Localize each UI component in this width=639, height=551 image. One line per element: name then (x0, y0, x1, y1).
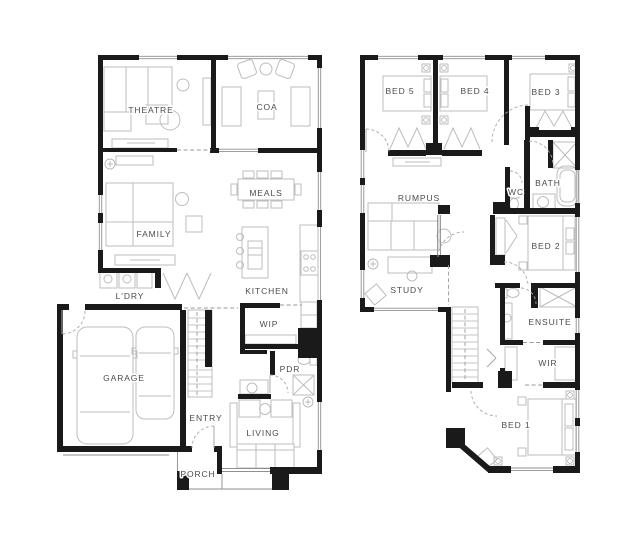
room-label-ensuite: ENSUITE (528, 317, 571, 327)
room-label-laundry: L'DRY (116, 291, 145, 301)
room-label-living: LIVING (246, 428, 279, 438)
room-label-theatre: THEATRE (128, 105, 173, 115)
room-label-powder: PDR (280, 364, 301, 374)
room-label-entry: ENTRY (189, 413, 222, 423)
room-label-coa: COA (256, 102, 277, 112)
floor-plan-canvas: THEATRE COA MEALS FAMILY KITCHEN L'DRY W… (0, 0, 639, 551)
room-label-bed1: BED 1 (501, 420, 530, 430)
floor-plan-page: THEATRE COA MEALS FAMILY KITCHEN L'DRY W… (0, 0, 639, 551)
room-label-family: FAMILY (136, 229, 171, 239)
room-label-porch: PORCH (180, 469, 215, 479)
room-label-bed3: BED 3 (531, 87, 560, 97)
room-label-bed4: BED 4 (460, 86, 489, 96)
room-label-rumpus: RUMPUS (398, 193, 440, 203)
room-label-study: STUDY (390, 285, 423, 295)
first-floor-plan: BED 5 BED 4 BED 3 RUMPUS WC BATH BED 2 S… (360, 55, 580, 473)
room-label-wip: WIP (260, 319, 279, 329)
room-label-bed2: BED 2 (531, 241, 560, 251)
room-label-kitchen: KITCHEN (245, 286, 289, 296)
ground-floor-plan: THEATRE COA MEALS FAMILY KITCHEN L'DRY W… (57, 55, 322, 490)
room-label-wc: WC (508, 187, 524, 197)
room-label-meals: MEALS (249, 188, 282, 198)
room-label-bed5: BED 5 (385, 86, 414, 96)
room-label-bath: BATH (535, 178, 561, 188)
first-floor-furniture (365, 64, 578, 469)
ground-floor-walls (57, 55, 322, 490)
room-label-wir: WIR (538, 358, 557, 368)
room-label-garage: GARAGE (103, 373, 145, 383)
first-floor-stairs (452, 307, 478, 383)
